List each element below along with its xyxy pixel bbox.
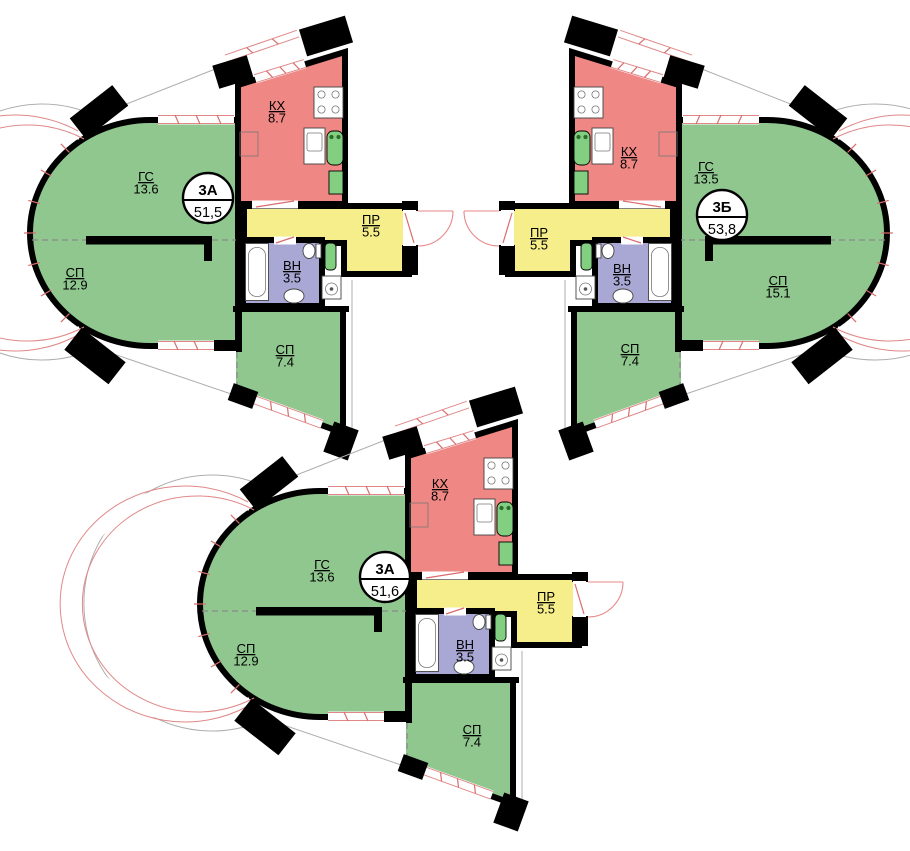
badge-total: 51,5 xyxy=(194,205,222,221)
room-area-hall: 5.5 xyxy=(362,225,380,240)
badge-type: 3А xyxy=(375,561,394,578)
room-area-kitchen: 8.7 xyxy=(620,157,638,172)
badge-total: 53,8 xyxy=(708,222,736,238)
room-area-bath: 3.5 xyxy=(613,274,631,289)
room-area-bath: 3.5 xyxy=(456,650,474,665)
room-area-bedroom-second: 7.4 xyxy=(276,355,294,370)
badge-total: 51,6 xyxy=(371,584,399,600)
room-area-hall: 5.5 xyxy=(530,238,548,253)
room-area-bedroom-main: 12.9 xyxy=(62,278,87,293)
room-area-hall: 5.5 xyxy=(537,602,555,617)
room-area-kitchen: 8.7 xyxy=(431,489,449,504)
floorplan-svg: ГС 13.6 СП 12.9 КХ 8.7 ПР 5.5 ВН 3.5 СП … xyxy=(0,0,910,851)
room-area-living: 13.5 xyxy=(693,172,718,187)
badge-type: 3А xyxy=(198,182,217,199)
room-area-bath: 3.5 xyxy=(283,271,301,286)
room-area-living: 13.6 xyxy=(133,182,158,197)
room-area-living: 13.6 xyxy=(309,570,334,585)
room-area-bedroom-second: 7.4 xyxy=(621,354,639,369)
room-area-bedroom-main: 15.1 xyxy=(765,286,790,301)
room-area-kitchen: 8.7 xyxy=(268,111,286,126)
floorplan-page: ГС 13.6 СП 12.9 КХ 8.7 ПР 5.5 ВН 3.5 СП … xyxy=(0,0,910,851)
room-area-bedroom-main: 12.9 xyxy=(233,654,258,669)
room-area-bedroom-second: 7.4 xyxy=(463,735,481,750)
apartment-3a-top-left xyxy=(0,16,453,461)
apartment-badge: 3Б 53,8 xyxy=(697,190,747,240)
apartment-badge: 3А 51,5 xyxy=(183,173,233,223)
apartment-badge: 3А 51,6 xyxy=(360,552,410,602)
badge-type: 3Б xyxy=(712,199,731,216)
